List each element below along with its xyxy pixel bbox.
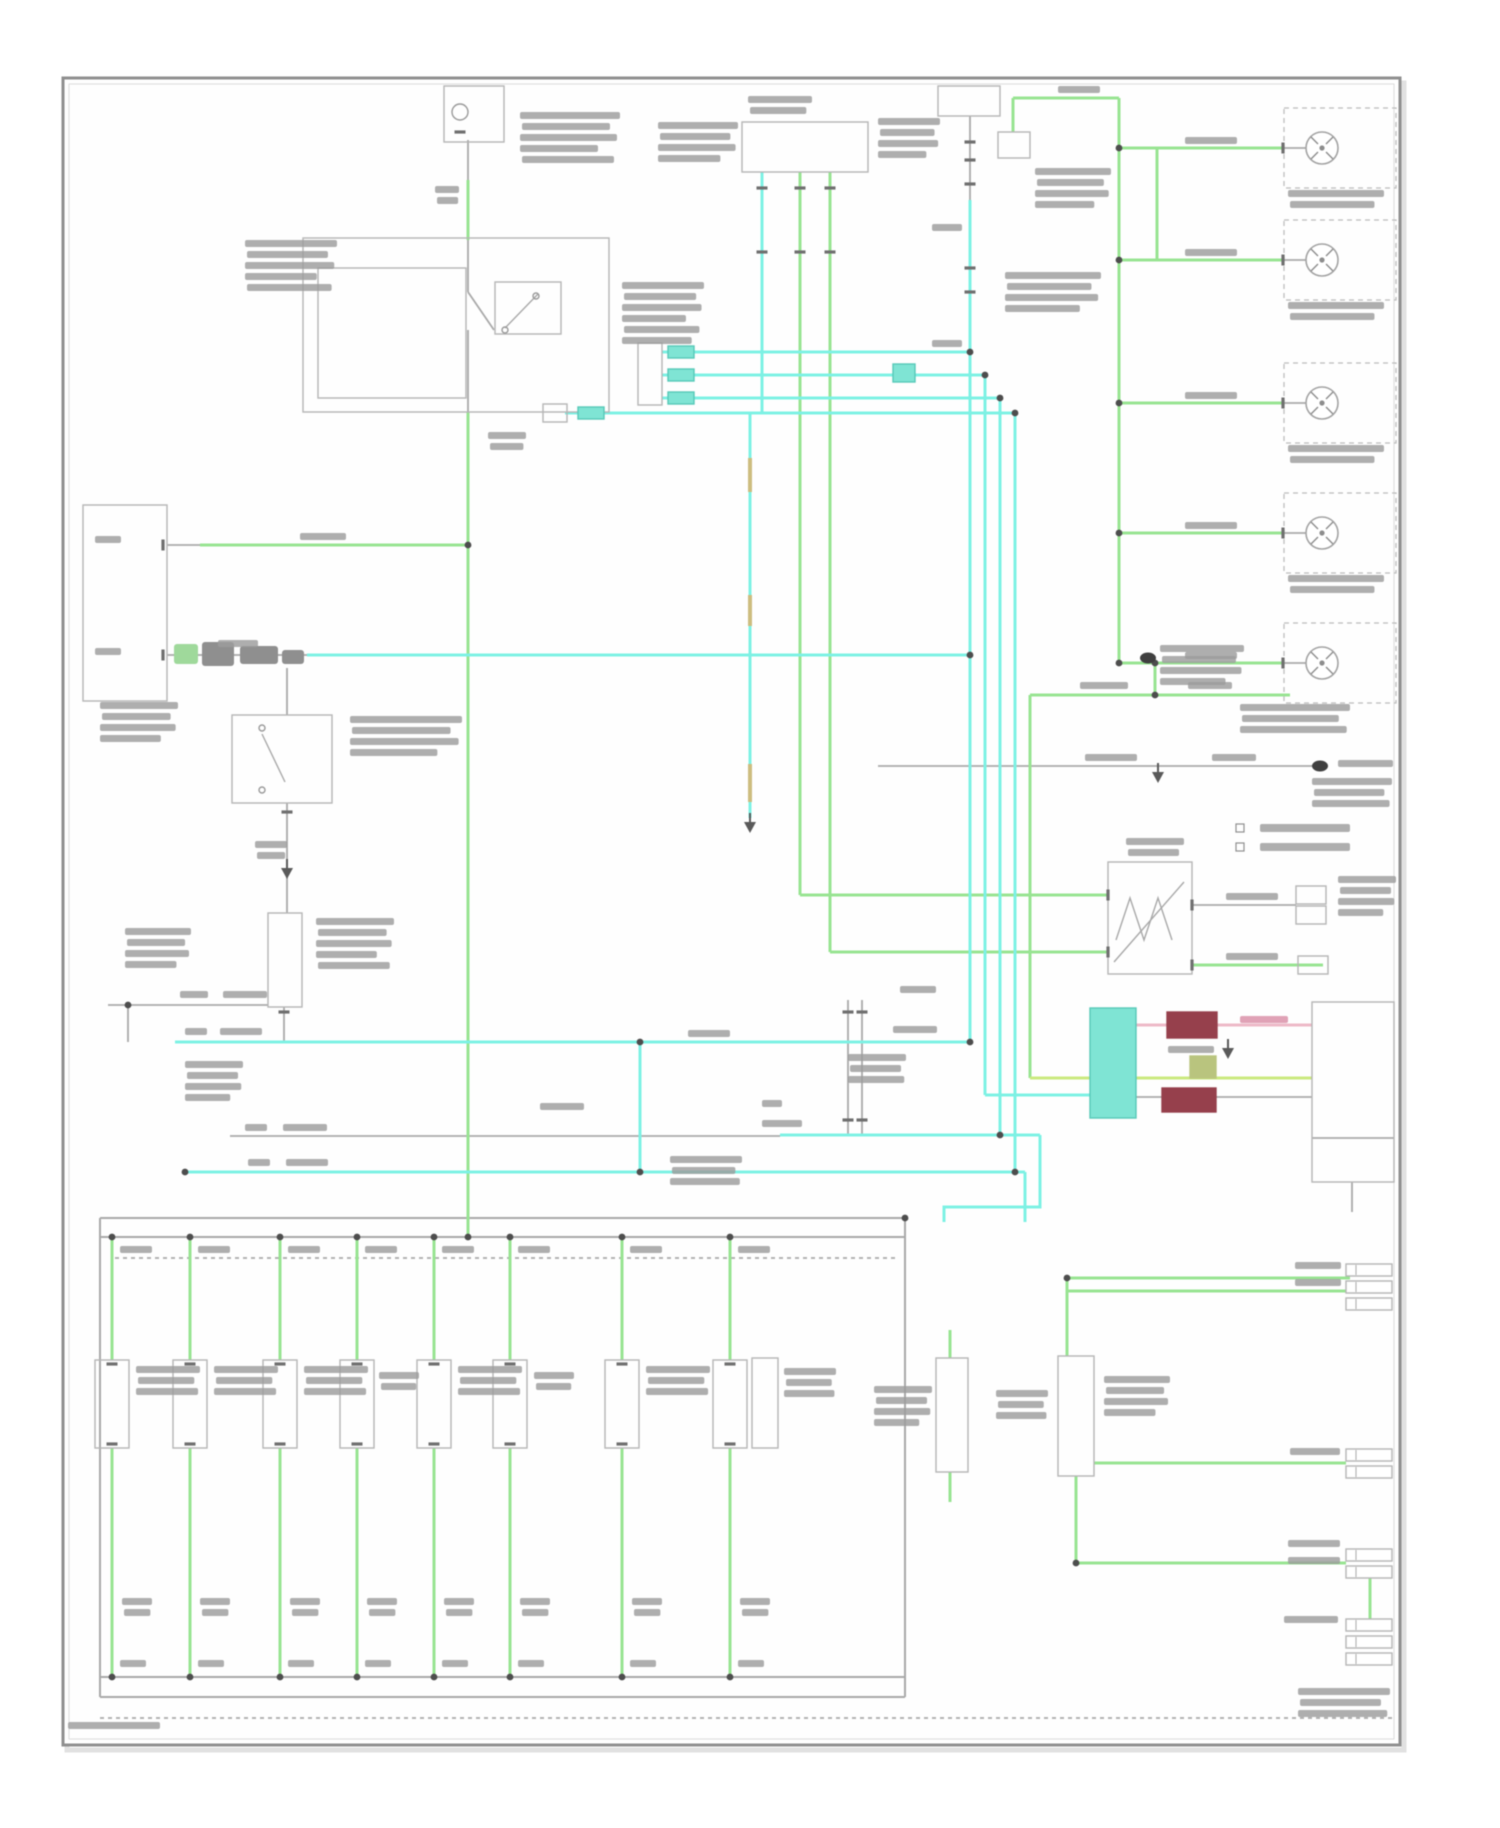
wire-label xyxy=(68,1722,160,1729)
connector-tick xyxy=(1281,143,1284,154)
label-line xyxy=(304,1388,366,1395)
wire-label xyxy=(223,991,267,998)
label-line xyxy=(306,1377,362,1384)
connector-tick xyxy=(857,1118,868,1121)
wire-label xyxy=(1295,1279,1341,1286)
legend-row xyxy=(1260,843,1350,851)
label-block xyxy=(1312,778,1392,807)
connector-tick xyxy=(1106,890,1109,901)
label-block xyxy=(1185,137,1237,144)
label-block xyxy=(136,1366,200,1395)
wire-label xyxy=(900,986,936,993)
teal-connector xyxy=(893,364,915,382)
label-line xyxy=(136,1388,198,1395)
legend-row xyxy=(1260,824,1350,832)
connector-bullet xyxy=(1312,761,1328,772)
wire-label xyxy=(1288,1557,1340,1564)
edge-connector-row xyxy=(1346,1449,1392,1461)
label-line xyxy=(874,1408,930,1415)
label-block xyxy=(220,1028,262,1035)
label-block xyxy=(286,1159,328,1166)
label-line xyxy=(122,1598,152,1605)
junction-dot xyxy=(967,652,974,659)
connector-tick xyxy=(725,1442,736,1445)
label-block xyxy=(1290,1448,1340,1455)
label-line xyxy=(318,929,387,936)
label-block xyxy=(1226,953,1278,960)
label-line xyxy=(245,273,317,280)
label-line xyxy=(624,293,696,300)
connector-tick xyxy=(1281,255,1284,266)
label-block xyxy=(738,1246,770,1253)
label-line xyxy=(1312,778,1392,785)
label-block xyxy=(1338,760,1393,767)
label-line xyxy=(784,1390,834,1397)
wire-label xyxy=(286,1159,328,1166)
label-line xyxy=(878,140,938,147)
wire-label xyxy=(120,1246,152,1253)
wire-label xyxy=(1185,137,1237,144)
label-line xyxy=(100,724,176,731)
teal-connector xyxy=(668,346,694,358)
label-block xyxy=(214,1366,278,1395)
wire-label xyxy=(365,1246,397,1253)
connector-tick xyxy=(429,1362,440,1365)
label-block xyxy=(198,1660,224,1667)
connector-tick xyxy=(505,1362,516,1365)
label-line xyxy=(1338,898,1394,905)
label-line xyxy=(1314,789,1384,796)
label-line xyxy=(100,735,161,742)
label-block xyxy=(95,536,121,543)
junction-dot xyxy=(619,1674,626,1681)
junction-dot xyxy=(619,1234,626,1241)
label-line xyxy=(304,1366,368,1373)
junction-dot xyxy=(431,1234,438,1241)
label-line xyxy=(848,1076,904,1083)
label-block xyxy=(762,1100,782,1107)
label-line xyxy=(460,1377,516,1384)
label-line xyxy=(1338,909,1383,916)
label-block xyxy=(1168,1046,1214,1053)
label-line xyxy=(138,1377,194,1384)
connector-blob xyxy=(282,650,304,664)
wire-label xyxy=(932,340,962,347)
label-line xyxy=(124,1609,150,1616)
label-block xyxy=(1295,1262,1341,1269)
label-block xyxy=(848,1054,906,1083)
wire-label xyxy=(442,1660,468,1667)
label-line xyxy=(437,197,458,204)
edge-connector-row xyxy=(1346,1264,1392,1276)
label-block xyxy=(1185,522,1237,529)
label-line xyxy=(1340,887,1391,894)
label-line xyxy=(446,1609,472,1616)
label-line xyxy=(522,156,614,163)
label-line xyxy=(1035,201,1094,208)
label-block xyxy=(120,1246,152,1253)
label-line xyxy=(458,1366,522,1373)
junction-dot xyxy=(1064,1275,1071,1282)
label-line xyxy=(658,155,720,162)
connector-tick xyxy=(161,650,164,661)
label-line xyxy=(1160,645,1244,652)
label-line xyxy=(202,1609,228,1616)
connector-tick xyxy=(185,1442,196,1445)
connector-tick xyxy=(279,1010,290,1013)
teal-connector xyxy=(1090,1008,1136,1118)
wire-label xyxy=(1295,1262,1341,1269)
wire-label xyxy=(180,991,208,998)
wire-label xyxy=(1185,522,1237,529)
label-line xyxy=(379,1372,419,1379)
wire-label xyxy=(688,1030,730,1037)
junction-dot xyxy=(354,1234,361,1241)
label-line xyxy=(740,1598,770,1605)
connector-tick xyxy=(505,1442,516,1445)
junction-dot xyxy=(1116,400,1123,407)
label-block xyxy=(442,1246,474,1253)
label-block xyxy=(248,1159,270,1166)
connector-tick xyxy=(352,1442,363,1445)
wire-label xyxy=(120,1660,146,1667)
label-line xyxy=(136,1366,200,1373)
label-line xyxy=(874,1419,919,1426)
label-line xyxy=(522,123,610,130)
label-block xyxy=(198,1246,230,1253)
connector-tick xyxy=(1106,947,1109,958)
screenshot-root xyxy=(0,0,1500,1828)
connector-tick xyxy=(275,1362,286,1365)
junction-dot xyxy=(277,1234,284,1241)
junction-dot xyxy=(109,1234,116,1241)
connector-tick xyxy=(1281,528,1284,539)
wire-label xyxy=(198,1246,230,1253)
connector-tick xyxy=(965,182,976,185)
label-line xyxy=(290,1598,320,1605)
bulb-filament xyxy=(1319,400,1324,405)
label-line xyxy=(536,1383,571,1390)
label-block xyxy=(218,640,258,647)
label-line xyxy=(750,107,806,114)
label-line xyxy=(534,1372,574,1379)
wire-label xyxy=(738,1660,764,1667)
label-block xyxy=(1284,1616,1338,1623)
label-block xyxy=(68,1722,160,1729)
label-line xyxy=(316,918,394,925)
label-line xyxy=(522,1609,548,1616)
wire-label xyxy=(762,1100,782,1107)
junction-dot xyxy=(727,1674,734,1681)
connector-tick xyxy=(617,1362,628,1365)
label-line xyxy=(742,1609,768,1616)
label-line xyxy=(658,122,738,129)
label-line xyxy=(200,1598,230,1605)
diagram-svg xyxy=(0,0,1500,1828)
label-line xyxy=(1290,456,1374,463)
label-line xyxy=(350,716,462,723)
edge-connector-row xyxy=(1346,1653,1392,1665)
label-line xyxy=(1288,190,1384,197)
wire-label xyxy=(1080,682,1128,689)
connector-tick xyxy=(352,1362,363,1365)
label-line xyxy=(1160,667,1241,674)
label-block xyxy=(365,1660,391,1667)
connector-tick xyxy=(843,1118,854,1121)
maroon-block xyxy=(1162,1088,1216,1112)
label-line xyxy=(352,727,451,734)
label-line xyxy=(490,443,523,450)
connector-tick xyxy=(161,540,164,551)
label-line xyxy=(1300,1699,1381,1706)
label-line xyxy=(350,749,437,756)
wire-label xyxy=(1058,86,1100,93)
label-line xyxy=(998,1401,1044,1408)
label-line xyxy=(1005,294,1098,301)
label-line xyxy=(1290,313,1374,320)
wire-label xyxy=(1240,1016,1288,1023)
label-block xyxy=(1185,392,1237,399)
connector-tick xyxy=(107,1362,118,1365)
label-line xyxy=(624,326,699,333)
label-block xyxy=(996,1390,1048,1419)
wire-label xyxy=(245,1124,267,1131)
label-line xyxy=(316,951,377,958)
label-line xyxy=(1288,575,1384,582)
label-line xyxy=(520,134,617,141)
wire-label xyxy=(1168,1046,1214,1053)
junction-dot xyxy=(187,1234,194,1241)
connector-tick xyxy=(757,250,768,253)
label-line xyxy=(255,841,287,848)
label-block xyxy=(1298,1688,1390,1717)
label-block xyxy=(442,1660,468,1667)
label-line xyxy=(214,1366,278,1373)
wire-label xyxy=(300,533,346,540)
label-line xyxy=(367,1598,397,1605)
label-line xyxy=(622,337,692,344)
label-line xyxy=(245,240,337,247)
label-line xyxy=(292,1609,318,1616)
label-block xyxy=(283,1124,327,1131)
connector-tick xyxy=(282,810,293,813)
junction-dot xyxy=(507,1674,514,1681)
label-line xyxy=(350,738,459,745)
wire-label xyxy=(893,1026,937,1033)
connector-tick xyxy=(185,1362,196,1365)
connector-tick xyxy=(275,1442,286,1445)
label-block xyxy=(185,1028,207,1035)
junction-dot xyxy=(637,1169,644,1176)
label-line xyxy=(127,939,185,946)
label-line xyxy=(1288,445,1384,452)
connector-tick xyxy=(1281,398,1284,409)
label-line xyxy=(444,1598,474,1605)
label-line xyxy=(1242,715,1339,722)
label-line xyxy=(850,1065,901,1072)
label-line xyxy=(646,1388,708,1395)
wire-label xyxy=(738,1246,770,1253)
connector-tick xyxy=(857,1010,868,1013)
bulb-filament xyxy=(1319,145,1324,150)
edge-connector-row xyxy=(1346,1549,1392,1561)
bulb-filament xyxy=(1319,530,1324,535)
wire-label xyxy=(630,1660,656,1667)
wire-label xyxy=(1085,754,1137,761)
edge-connector-row xyxy=(1346,1466,1392,1478)
label-line xyxy=(1290,201,1374,208)
label-line xyxy=(1290,586,1374,593)
label-block xyxy=(1240,1016,1288,1023)
label-line xyxy=(318,962,390,969)
label-block xyxy=(630,1660,656,1667)
label-line xyxy=(458,1388,520,1395)
label-block xyxy=(458,1366,522,1395)
label-line xyxy=(786,1379,832,1386)
label-line xyxy=(672,1167,735,1174)
connector-tick xyxy=(107,1442,118,1445)
junction-dot xyxy=(982,372,989,379)
wire-label xyxy=(248,1159,270,1166)
label-block xyxy=(300,533,346,540)
label-block xyxy=(932,340,962,347)
connector-tick xyxy=(965,140,976,143)
junction-dot xyxy=(507,1234,514,1241)
label-block xyxy=(120,1660,146,1667)
label-line xyxy=(125,950,189,957)
label-line xyxy=(1338,876,1396,883)
label-block xyxy=(738,1660,764,1667)
label-block xyxy=(1288,1540,1340,1547)
teal-connector xyxy=(578,407,604,419)
junction-dot xyxy=(1073,1560,1080,1567)
label-block xyxy=(1295,1279,1341,1286)
label-line xyxy=(876,1397,927,1404)
label-block xyxy=(180,991,208,998)
edge-connector-row xyxy=(1346,1566,1392,1578)
label-line xyxy=(245,262,334,269)
wire-label xyxy=(1338,760,1393,767)
label-block xyxy=(1058,86,1100,93)
wire-label xyxy=(1185,249,1237,256)
label-line xyxy=(1104,1376,1170,1383)
label-line xyxy=(1126,838,1184,845)
green-connector-blob xyxy=(174,644,198,664)
wire-label xyxy=(95,536,121,543)
junction-dot xyxy=(1012,410,1019,417)
label-line xyxy=(435,186,459,193)
label-line xyxy=(658,144,736,151)
label-line xyxy=(748,96,812,103)
label-line xyxy=(520,1598,550,1605)
label-block xyxy=(646,1366,710,1395)
label-block xyxy=(1226,893,1278,900)
wire-label xyxy=(1226,893,1278,900)
maroon-block xyxy=(1167,1012,1217,1038)
label-line xyxy=(880,129,935,136)
label-block xyxy=(1240,704,1350,733)
label-line xyxy=(1035,190,1109,197)
label-line xyxy=(848,1054,906,1061)
wire-label xyxy=(518,1246,550,1253)
label-block xyxy=(518,1660,544,1667)
connector-tick xyxy=(825,250,836,253)
label-line xyxy=(316,940,392,947)
label-line xyxy=(1005,305,1080,312)
wiring-diagram-canvas xyxy=(0,0,1500,1828)
label-line xyxy=(670,1156,742,1163)
label-line xyxy=(100,702,178,709)
edge-connector-row xyxy=(1346,1636,1392,1648)
olive-block xyxy=(1190,1056,1216,1078)
label-line xyxy=(996,1412,1046,1419)
label-line xyxy=(187,1072,238,1079)
wire-label xyxy=(95,648,121,655)
label-line xyxy=(1240,704,1350,711)
wire-label xyxy=(1284,1616,1338,1623)
junction-dot xyxy=(1116,660,1123,667)
label-line xyxy=(1037,179,1104,186)
connector-tick xyxy=(825,186,836,189)
edge-connector-row xyxy=(1346,1298,1392,1310)
label-block xyxy=(304,1366,368,1395)
label-line xyxy=(185,1061,243,1068)
connector-tick xyxy=(965,290,976,293)
label-line xyxy=(784,1368,836,1375)
label-line xyxy=(646,1366,710,1373)
connector-tick xyxy=(795,186,806,189)
junction-dot xyxy=(465,1234,472,1241)
wire-label xyxy=(1290,1448,1340,1455)
junction-dot xyxy=(997,395,1004,402)
connector-blob xyxy=(240,646,278,664)
junction-dot xyxy=(1012,1169,1019,1176)
label-line xyxy=(1104,1398,1168,1405)
junction-dot xyxy=(187,1674,194,1681)
label-line xyxy=(660,133,730,140)
label-block xyxy=(893,1026,937,1033)
label-line xyxy=(488,432,526,439)
junction-dot xyxy=(997,1132,1004,1139)
connector-tick xyxy=(455,130,466,133)
wire-label xyxy=(365,1660,391,1667)
connector-tick xyxy=(1281,658,1284,669)
label-line xyxy=(622,282,704,289)
label-line xyxy=(634,1609,660,1616)
junction-dot xyxy=(109,1674,116,1681)
label-block xyxy=(762,1120,802,1127)
connector-tick xyxy=(843,1010,854,1013)
connector-tick xyxy=(617,1442,628,1445)
label-block xyxy=(630,1246,662,1253)
wire-label xyxy=(932,224,962,231)
label-block xyxy=(1212,754,1256,761)
wire-label xyxy=(218,640,258,647)
junction-dot xyxy=(967,1039,974,1046)
junction-dot xyxy=(354,1674,361,1681)
label-line xyxy=(874,1386,932,1393)
junction-dot xyxy=(967,349,974,356)
bulb-filament xyxy=(1319,257,1324,262)
connector-tick xyxy=(965,158,976,161)
label-line xyxy=(996,1390,1048,1397)
junction-dot xyxy=(465,542,472,549)
label-line xyxy=(1160,678,1226,685)
label-line xyxy=(1312,800,1390,807)
label-line xyxy=(216,1377,272,1384)
label-line xyxy=(648,1377,704,1384)
connector-tick xyxy=(757,186,768,189)
